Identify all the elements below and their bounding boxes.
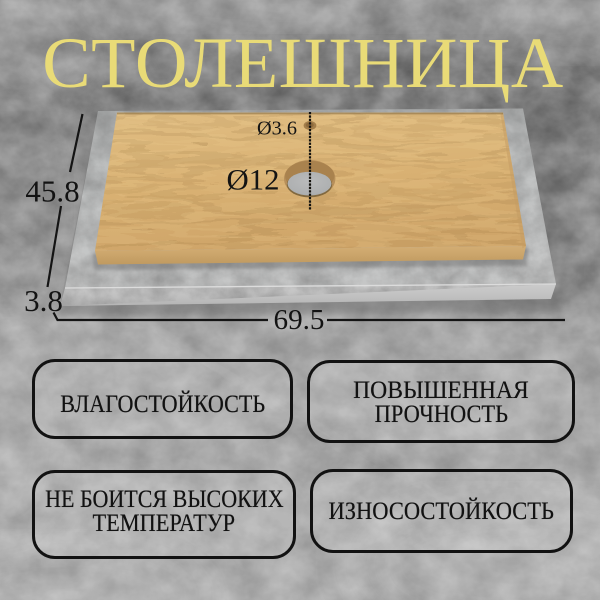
svg-text:3.8: 3.8 (24, 283, 63, 318)
svg-text:45.8: 45.8 (25, 174, 79, 209)
svg-text:69.5: 69.5 (274, 304, 325, 336)
svg-text:Ø12: Ø12 (227, 164, 280, 197)
svg-text:Ø3.6: Ø3.6 (257, 118, 297, 140)
